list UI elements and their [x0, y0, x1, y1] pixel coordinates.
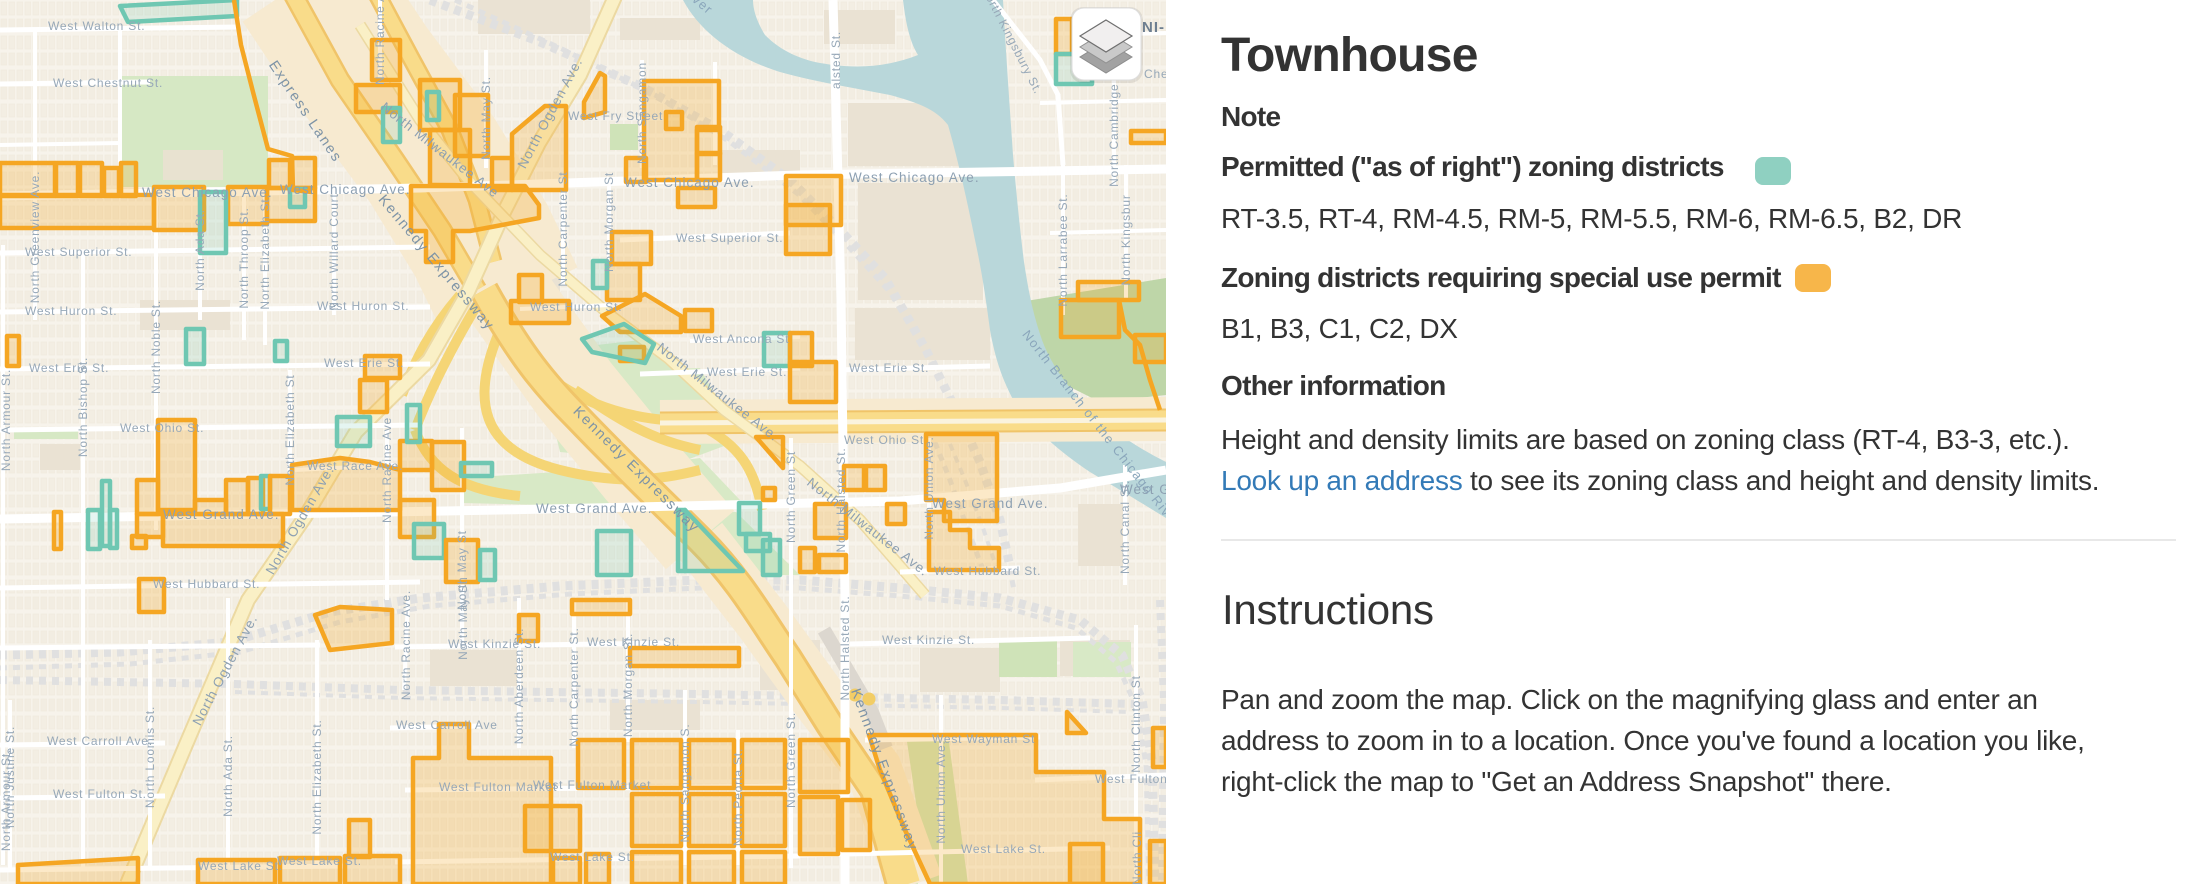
svg-text:West Chicago Ave.: West Chicago Ave.	[142, 185, 273, 200]
svg-text:Ches: Ches	[1144, 67, 1166, 81]
svg-text:North Willard Court: North Willard Court	[327, 193, 341, 310]
svg-text:West Fulton Market: West Fulton Market	[533, 778, 651, 792]
svg-text:North Green St: North Green St	[784, 451, 798, 543]
svg-text:West Ohio St: West Ohio St	[844, 433, 924, 447]
svg-text:West Ohio St.: West Ohio St.	[120, 421, 204, 435]
svg-text:West Chicago Ave.: West Chicago Ave.	[849, 170, 980, 185]
svg-text:North Racine Ave: North Racine Ave	[380, 417, 394, 523]
svg-text:North Larrabee St.: North Larrabee St.	[1056, 193, 1070, 306]
svg-text:North Bishop St.: North Bishop St.	[76, 357, 90, 457]
svg-text:North Racine Ave.: North Racine Ave.	[399, 590, 413, 700]
svg-text:West Hubbard St.: West Hubbard St.	[934, 564, 1041, 578]
svg-text:North Loomis St.: North Loomis St.	[143, 706, 157, 808]
svg-text:North Carpenter St.: North Carpenter St.	[567, 627, 581, 746]
svg-text:West Ancona St: West Ancona St	[693, 332, 789, 346]
svg-text:alsted St.: alsted St.	[829, 31, 843, 89]
svg-text:North Cli: North Cli	[1130, 831, 1144, 884]
svg-text:West Walton St.: West Walton St.	[48, 19, 145, 33]
svg-text:North Armour St.: North Armour St.	[0, 369, 13, 471]
svg-text:West Chicago Ave.: West Chicago Ave.	[624, 175, 755, 190]
svg-text:West Erie St.: West Erie St.	[849, 361, 929, 375]
svg-text:North Sangamon: North Sangamon	[635, 62, 649, 164]
svg-text:North Elizabeth St.: North Elizabeth St.	[310, 719, 324, 834]
svg-text:North Clinton St: North Clinton St	[1129, 675, 1143, 773]
svg-text:North Greenview Ave.: North Greenview Ave.	[28, 171, 42, 304]
svg-text:West Huron St.: West Huron St.	[530, 300, 622, 314]
svg-text:North Union Ave.: North Union Ave.	[934, 740, 948, 843]
svg-text:West Grand Ave.: West Grand Ave.	[536, 501, 653, 516]
svg-text:North Ada St.: North Ada St.	[193, 209, 207, 291]
svg-text:North Noble St.: North Noble St.	[149, 300, 163, 394]
svg-text:North Throop St.: North Throop St.	[237, 207, 251, 308]
svg-text:West Carroll Ave: West Carroll Ave	[396, 718, 498, 732]
svg-text:North Elizabeth St: North Elizabeth St	[283, 374, 297, 485]
svg-text:North Morgan St: North Morgan St	[602, 172, 616, 272]
svg-text:West Chicago Ave.: West Chicago Ave.	[280, 182, 411, 197]
svg-text:North May St.: North May St.	[479, 76, 493, 160]
svg-text:West Superior St.: West Superior St.	[676, 231, 783, 245]
svg-text:North Ada St.: North Ada St.	[221, 735, 235, 817]
svg-text:North Green St.: North Green St.	[784, 712, 798, 808]
svg-text:West Lake St.: West Lake St.	[550, 850, 635, 864]
svg-text:North Union Ave.: North Union Ave.	[922, 436, 936, 539]
svg-text:West Chestnut St.: West Chestnut St.	[53, 76, 163, 90]
svg-text:North Racine Ave: North Racine Ave	[373, 0, 387, 85]
svg-text:West Fulton: West Fulton	[1095, 772, 1166, 786]
svg-text:West Erie St.: West Erie St.	[324, 356, 404, 370]
svg-text:West Huron St.: West Huron St.	[25, 304, 117, 318]
svg-text:North Peoria St.: North Peoria St.	[731, 748, 745, 846]
svg-text:West Hubbard St.: West Hubbard St.	[153, 577, 260, 591]
svg-text:North Carpenter St: North Carpenter St	[556, 171, 570, 286]
svg-text:North Kingsbur: North Kingsbur	[1119, 194, 1133, 285]
svg-text:West Erie St.: West Erie St.	[29, 361, 109, 375]
svg-text:West Carroll Ave.: West Carroll Ave.	[47, 734, 153, 748]
svg-text:North Canal St.: North Canal St.	[1118, 480, 1132, 574]
svg-text:North Aberdeen St.: North Aberdeen St.	[512, 628, 526, 744]
svg-text:West Lake St.: West Lake St.	[277, 854, 362, 868]
svg-text:NI-: NI-	[1142, 19, 1165, 36]
svg-text:West Grand Ave.: West Grand Ave.	[163, 507, 280, 522]
svg-text:West Kinzie St.: West Kinzie St.	[882, 633, 975, 647]
svg-text:West Lake St.: West Lake St.	[198, 859, 283, 873]
svg-text:West Lake St.: West Lake St.	[961, 842, 1046, 856]
svg-text:North Elizabeth St.: North Elizabeth St.	[258, 194, 272, 309]
svg-text:North Justine St.: North Justine St.	[3, 726, 17, 828]
svg-text:West Erie St.: West Erie St.	[707, 365, 787, 379]
svg-text:North Morgan St.: North Morgan St.	[621, 633, 635, 737]
svg-text:North May St.: North May St.	[456, 576, 470, 660]
svg-text:West Grand Ave.: West Grand Ave.	[932, 496, 1049, 511]
svg-text:North Halsted St.: North Halsted St.	[838, 596, 852, 701]
svg-text:North Sangamon S.: North Sangamon S.	[678, 724, 692, 843]
svg-text:West Fulton St.: West Fulton St.	[53, 787, 147, 801]
